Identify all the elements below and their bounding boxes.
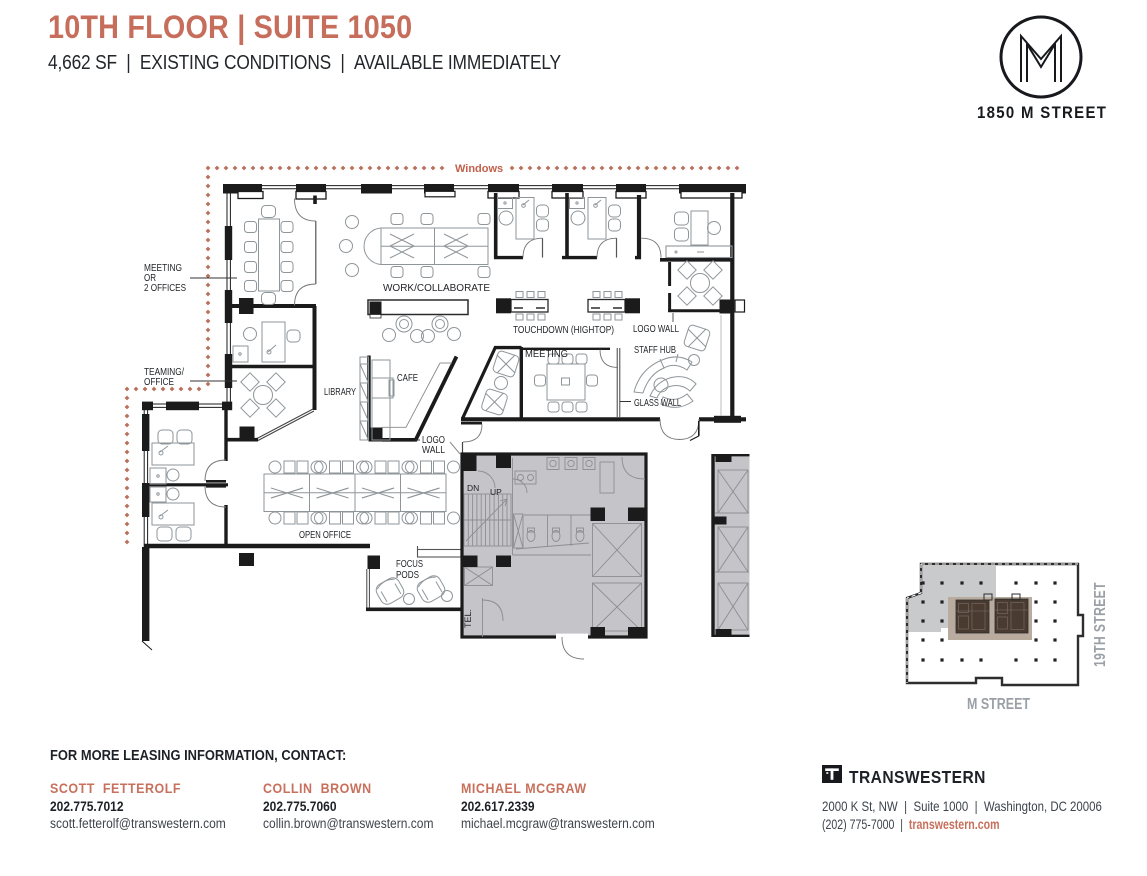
svg-text:WORK/COLLABORATE: WORK/COLLABORATE: [383, 283, 490, 294]
svg-text:Windows: Windows: [455, 163, 503, 175]
svg-text:WALL: WALL: [422, 445, 445, 456]
svg-text:CAFE: CAFE: [397, 373, 418, 384]
svg-text:STAFF HUB: STAFF HUB: [634, 345, 676, 356]
svg-text:TEL.: TEL.: [463, 609, 473, 628]
svg-text:TOUCHDOWN (HIGHTOP): TOUCHDOWN (HIGHTOP): [513, 325, 614, 336]
svg-text:FOCUS: FOCUS: [396, 559, 423, 570]
svg-text:OFFICE: OFFICE: [144, 377, 174, 388]
svg-text:LOGO WALL: LOGO WALL: [633, 324, 679, 335]
svg-text:PODS: PODS: [396, 570, 419, 581]
svg-text:2 OFFICES: 2 OFFICES: [144, 283, 186, 294]
svg-text:GLASS WALL: GLASS WALL: [634, 398, 681, 409]
svg-text:OPEN OFFICE: OPEN OFFICE: [299, 530, 351, 541]
svg-text:LIBRARY: LIBRARY: [324, 387, 356, 398]
svg-text:MEETING: MEETING: [525, 349, 568, 360]
svg-text:DN: DN: [467, 483, 479, 493]
svg-text:UP: UP: [490, 487, 502, 497]
